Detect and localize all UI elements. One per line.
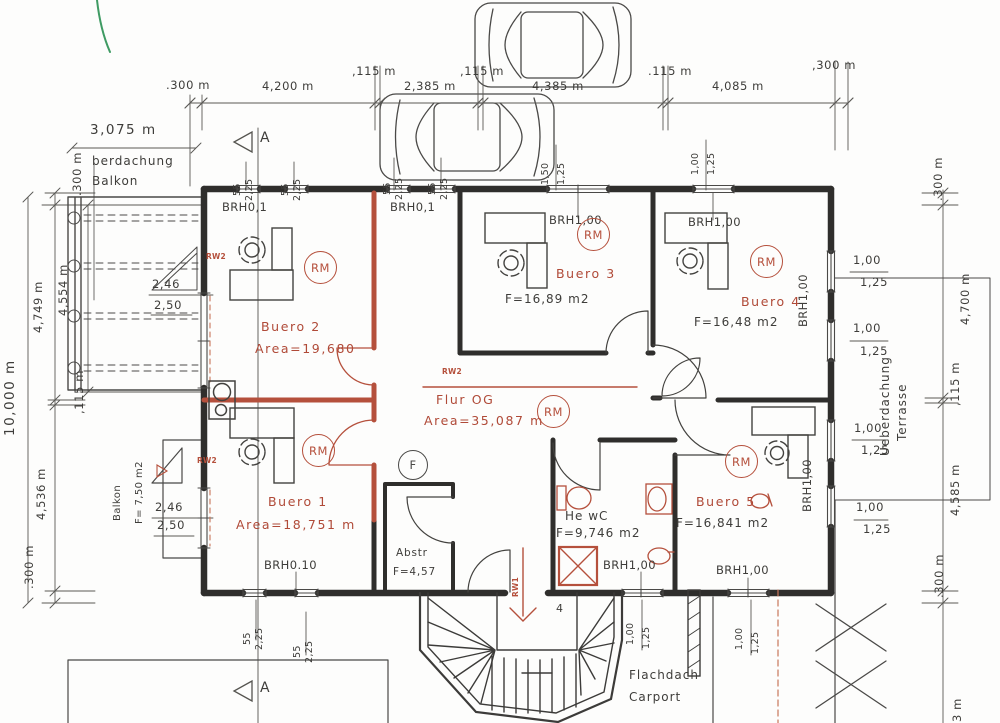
win-s4-100: 1,00 xyxy=(735,628,745,650)
dim-door-250-bottom: 2,50 xyxy=(157,520,185,532)
room-label-buero-3: Buero 3 xyxy=(556,268,616,281)
floorplan-page: .300 m4,200 m,115 m2,385 m,115 m4,385 m.… xyxy=(0,0,1000,723)
dim-top-300-right: ,300 m xyxy=(812,60,856,72)
dim-left-300-top: .300 m xyxy=(72,152,84,196)
room-area-buero-4: F=16,48 m2 xyxy=(694,316,778,328)
dim-balcony-3075: 3,075 m xyxy=(90,124,157,138)
note-ueberdachung: Ueberdachung xyxy=(879,356,891,456)
dim-top-4085: 4,085 m xyxy=(712,81,764,93)
note-carport: Carport xyxy=(629,691,681,703)
room-label-buero-2: Buero 2 xyxy=(261,321,321,334)
dim-left-4554: 4,554 m xyxy=(58,264,70,316)
rm-marker-flur: RM xyxy=(537,395,570,428)
annotation-layer: .300 m4,200 m,115 m2,385 m,115 m4,385 m.… xyxy=(0,0,1000,723)
brh-east-2: BRH1,00 xyxy=(802,459,814,512)
section-a-bottom: A xyxy=(260,681,270,695)
win-n6-100: 1,00 xyxy=(691,153,701,175)
win-n4-55: 55 xyxy=(428,182,438,195)
win-n1-55: 55 xyxy=(233,183,243,196)
room-label-abstr: Abstr xyxy=(396,548,428,559)
note-balkon-area: F= 7,50 m2 xyxy=(135,461,145,524)
win-s3-100: 1,00 xyxy=(626,623,636,645)
room-area-buero-3: F=16,89 m2 xyxy=(505,293,589,305)
win-n4-225: 2,25 xyxy=(440,178,450,200)
win-s4-125: 1,25 xyxy=(751,632,761,654)
rm-marker-buero-4: RM xyxy=(750,245,783,278)
dim-left-300-bottom: .300 m xyxy=(24,545,36,589)
dim-right-115: ,115 m xyxy=(950,362,962,406)
win-n1-225: 2,25 xyxy=(245,179,255,201)
room-area-buero-2: Area=19,680 xyxy=(255,343,356,356)
dim-left-115: ,115 m xyxy=(74,370,86,414)
win-e4-100: 1,00 xyxy=(856,502,884,514)
win-n3-225: 2,25 xyxy=(395,178,405,200)
room-label-flur-og: Flur OG xyxy=(436,394,494,407)
section-a-top: A xyxy=(260,131,270,145)
win-s2-55: 55 xyxy=(293,645,303,658)
room-label-he-wc: He wC xyxy=(565,510,608,522)
dim-right-300-top: .300 m xyxy=(933,157,945,201)
room-label-buero-4: Buero 4 xyxy=(741,296,801,309)
win-e1-100: 1,00 xyxy=(853,255,881,267)
rm-marker-buero-2: RM xyxy=(304,251,337,284)
win-n3-55: 55 xyxy=(383,182,393,195)
dim-top-300-left: .300 m xyxy=(166,80,210,92)
dim-right-4700: 4,700 m xyxy=(960,273,972,325)
win-n6-125: 1,25 xyxy=(707,153,717,175)
dim-left-10000: 10,000 m xyxy=(4,359,18,436)
dim-door-246-top: 2,46 xyxy=(152,279,180,291)
dim-right-300-bottom: .300 m xyxy=(934,554,946,598)
rw2-label-flur: RW2 xyxy=(442,368,462,376)
rm-marker-buero-5: RM xyxy=(725,445,758,478)
win-e4-125: 1,25 xyxy=(863,524,891,536)
dim-right-4585: 4,585 m xyxy=(950,464,962,516)
win-n2-225: 2,25 xyxy=(293,179,303,201)
f-marker: F xyxy=(398,450,428,480)
win-n5-150: 1,50 xyxy=(541,163,551,185)
win-n5-125: 1,25 xyxy=(557,163,567,185)
dim-top-4385: 4,385 m xyxy=(532,81,584,93)
note-balkon-top: Balkon xyxy=(92,175,138,187)
room-area-buero-5: F=16,841 m2 xyxy=(676,517,769,529)
room-label-buero-1: Buero 1 xyxy=(268,496,328,509)
note-berdachung: berdachung xyxy=(92,155,174,167)
dim-top-115-2: ,115 m xyxy=(460,66,504,78)
win-s1-55: 55 xyxy=(243,632,253,645)
brh-buero1: BRH0.10 xyxy=(264,560,317,572)
room-area-buero-1: Area=18,751 m xyxy=(236,519,356,532)
room-area-abstr: F=4,57 xyxy=(393,567,436,578)
brh-nw2: BRH0,1 xyxy=(390,202,435,214)
note-flachdach: Flachdach xyxy=(629,669,699,681)
room-label-buero-5: Buero 5 xyxy=(696,496,756,509)
dim-top-115-3: .115 m xyxy=(648,66,692,78)
dim-door-246-bottom: 2,46 xyxy=(155,502,183,514)
win-s3-125: 1,25 xyxy=(642,627,652,649)
dim-top-115-1: ,115 m xyxy=(352,66,396,78)
note-balkon-bottom: Balkon xyxy=(113,485,123,521)
win-e1-125: 1,25 xyxy=(860,277,888,289)
dim-left-4749: 4,749 m xyxy=(33,281,45,333)
brh-nw1: BRH0,1 xyxy=(222,202,267,214)
room-area-he-wc: F=9,746 m2 xyxy=(556,527,640,539)
note-terrasse: Terrasse xyxy=(896,383,908,441)
win-e2-100: 1,00 xyxy=(853,323,881,335)
stair-step-number: 4 xyxy=(556,603,564,614)
rm-marker-buero-3: RM xyxy=(577,218,610,251)
brh-hewc: BRH1,00 xyxy=(603,560,656,572)
rw2-label-balcony-bottom: RW2 xyxy=(197,457,217,465)
rw1-label-stairs: RW1 xyxy=(512,577,520,597)
dim-top-4200: 4,200 m xyxy=(262,81,314,93)
room-area-flur-og: Area=35,087 m xyxy=(424,415,544,428)
dim-top-2385: 2,385 m xyxy=(404,81,456,93)
brh-buero5: BRH1,00 xyxy=(716,565,769,577)
win-s2-225: 2,25 xyxy=(305,641,315,663)
dim-right-3m: 3 m xyxy=(952,698,964,722)
dim-left-4536: 4,536 m xyxy=(36,468,48,520)
win-s1-225: 2,25 xyxy=(255,628,265,650)
rw2-label-balcony-top: RW2 xyxy=(206,253,226,261)
brh-buero4: BRH1,00 xyxy=(688,217,741,229)
win-n2-55: 55 xyxy=(281,183,291,196)
rm-marker-buero-1: RM xyxy=(302,434,335,467)
dim-door-250-top: 2,50 xyxy=(154,300,182,312)
